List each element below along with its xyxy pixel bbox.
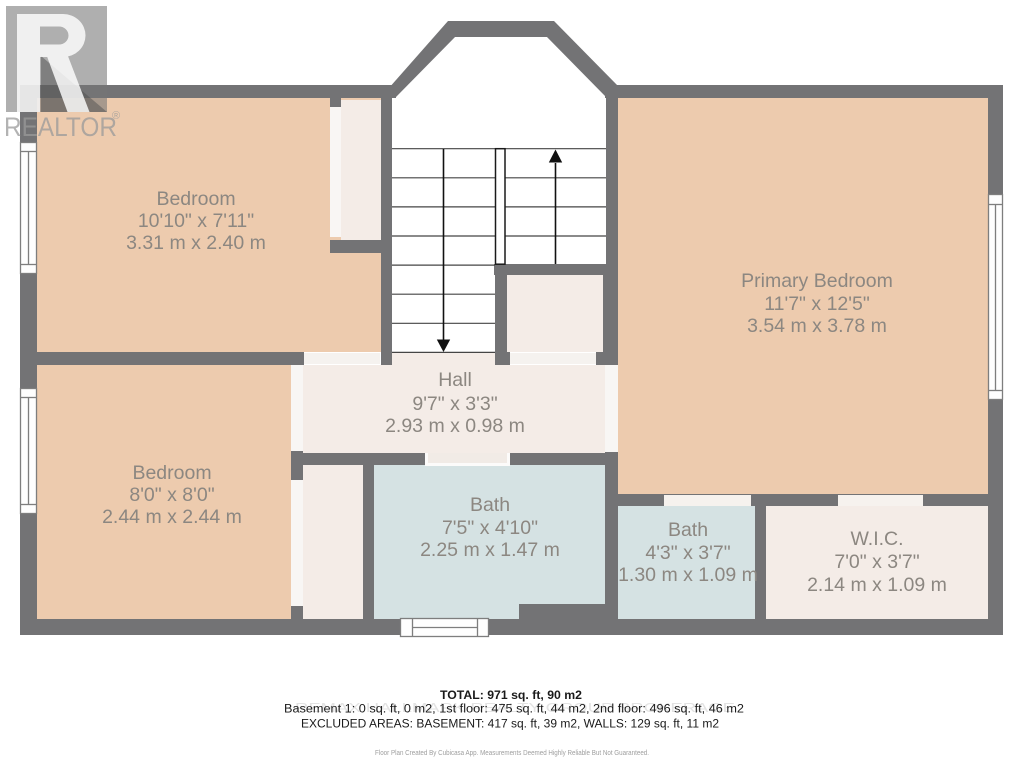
svg-text:1.30 m x 1.09 m: 1.30 m x 1.09 m	[618, 564, 758, 586]
svg-text:2.14 m x 1.09 m: 2.14 m x 1.09 m	[807, 574, 947, 596]
svg-text:10'10" x 7'11": 10'10" x 7'11"	[138, 210, 254, 232]
svg-text:4'3" x 3'7": 4'3" x 3'7"	[645, 542, 730, 564]
svg-text:11'7" x 12'5": 11'7" x 12'5"	[764, 293, 870, 315]
svg-text:W.I.C.: W.I.C.	[850, 528, 903, 550]
svg-text:Bath: Bath	[470, 494, 510, 516]
svg-text:7'5" x 4'10": 7'5" x 4'10"	[442, 517, 538, 539]
svg-text:2.25 m x 1.47 m: 2.25 m x 1.47 m	[420, 539, 560, 561]
svg-text:9'7" x 3'3": 9'7" x 3'3"	[412, 393, 497, 415]
svg-text:Floor Plan Created By Cubicasa: Floor Plan Created By Cubicasa App. Meas…	[375, 750, 649, 757]
svg-text:Primary Bedroom: Primary Bedroom	[741, 270, 893, 292]
svg-text:Bath: Bath	[668, 519, 708, 541]
svg-text:2.93 m x 0.98 m: 2.93 m x 0.98 m	[385, 415, 525, 437]
svg-text:8'0" x 8'0": 8'0" x 8'0"	[129, 484, 214, 506]
svg-text:Hall: Hall	[438, 369, 472, 391]
svg-text:TOTAL: 971 sq. ft, 90 m2: TOTAL: 971 sq. ft, 90 m2	[440, 690, 582, 702]
svg-text:3.54 m x 3.78 m: 3.54 m x 3.78 m	[747, 315, 887, 337]
svg-text:®: ®	[112, 110, 120, 122]
svg-text:EXCLUDED AREAS: BASEMENT: 417: EXCLUDED AREAS: BASEMENT: 417 sq. ft, 39…	[301, 719, 719, 731]
svg-text:Bedroom: Bedroom	[132, 462, 211, 484]
svg-text:REALTOR: REALTOR	[4, 112, 117, 142]
svg-text:7'0" x 3'7": 7'0" x 3'7"	[834, 551, 919, 573]
svg-text:Bedroom: Bedroom	[156, 188, 235, 210]
svg-text:3.31 m x 2.40 m: 3.31 m x 2.40 m	[126, 232, 266, 254]
svg-text:Basement 1: 0 sq. ft, 0 m2, 1s: Basement 1: 0 sq. ft, 0 m2, 1st floor: 4…	[284, 704, 744, 716]
svg-text:2.44 m x 2.44 m: 2.44 m x 2.44 m	[102, 506, 242, 528]
